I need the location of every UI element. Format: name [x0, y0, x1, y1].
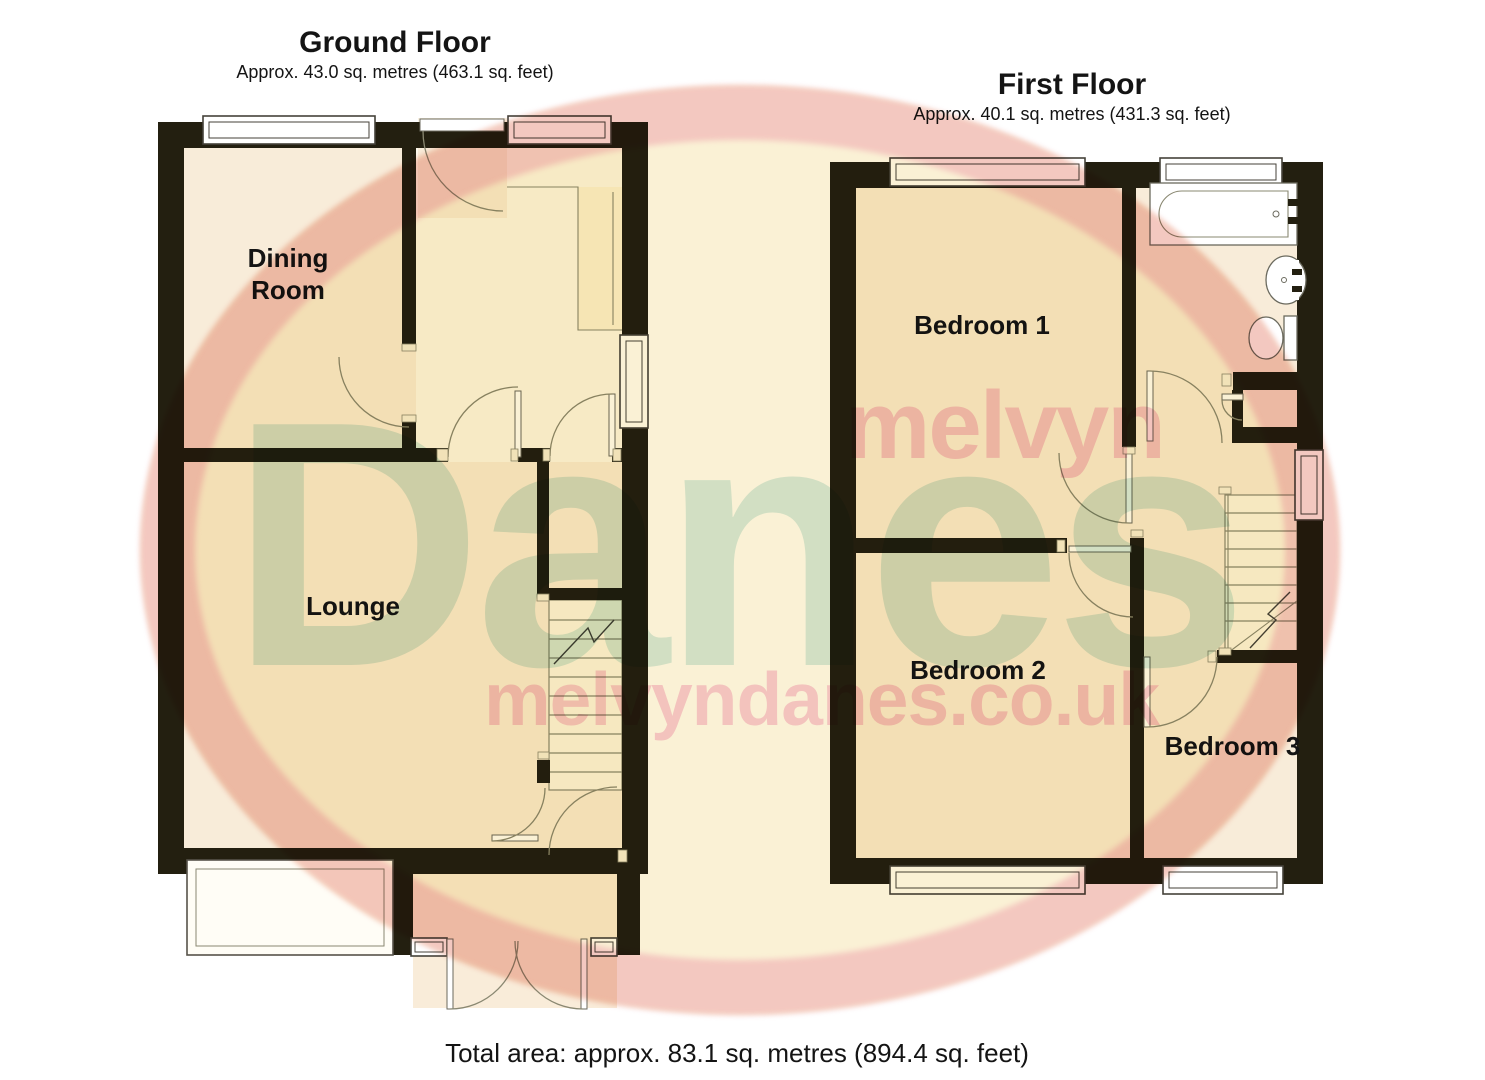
- bay-window-icon: [187, 860, 393, 955]
- floorplan-graphics: [0, 0, 1485, 1080]
- room-label-bedroom-3: Bedroom 3: [1130, 731, 1335, 763]
- room-label-lounge: Lounge: [253, 591, 453, 623]
- room-label-dining-room: Dining Room: [232, 243, 344, 306]
- bath-icon: [1150, 183, 1300, 245]
- first-floor-title: First Floor: [852, 68, 1292, 102]
- floorplan-page: Ground Floor Approx. 43.0 sq. metres (46…: [0, 0, 1485, 1080]
- first-floor-subtitle: Approx. 40.1 sq. metres (431.3 sq. feet): [852, 104, 1292, 125]
- sink-icon: [1266, 256, 1306, 304]
- ground-floor-title: Ground Floor: [175, 26, 615, 60]
- room-label-bedroom-1: Bedroom 1: [882, 310, 1082, 342]
- first-floor-plan: [830, 158, 1323, 894]
- room-label-bedroom-2: Bedroom 2: [878, 655, 1078, 687]
- stairs-up-icon: [549, 600, 622, 790]
- stairs-up-icon: [1225, 495, 1297, 655]
- toilet-icon: [1249, 316, 1297, 360]
- total-area-label: Total area: approx. 83.1 sq. metres (894…: [377, 1038, 1097, 1069]
- ground-floor-subtitle: Approx. 43.0 sq. metres (463.1 sq. feet): [175, 62, 615, 83]
